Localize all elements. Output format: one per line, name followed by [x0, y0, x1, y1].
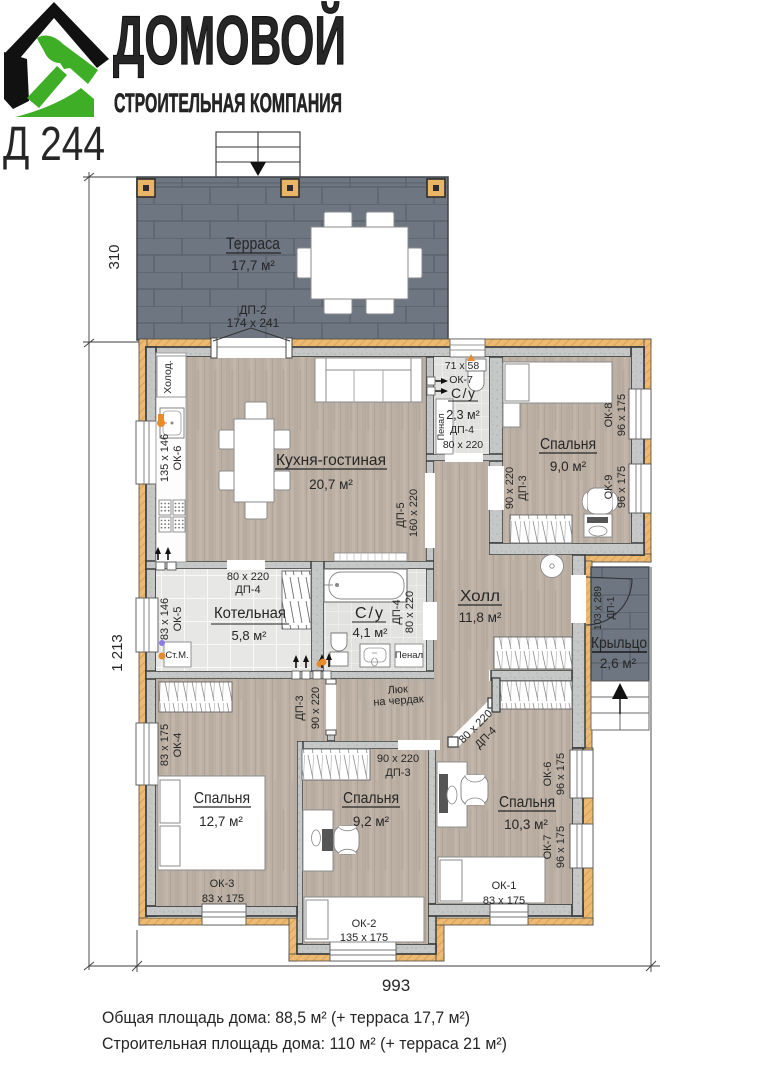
svg-text:ДП-3: ДП-3 [294, 695, 306, 720]
svg-text:83 х 175: 83 х 175 [483, 895, 525, 907]
svg-text:С/у: С/у [451, 385, 475, 401]
svg-text:10,3 м²: 10,3 м² [504, 817, 548, 832]
svg-text:12,7 м²: 12,7 м² [199, 814, 243, 829]
svg-text:90 х 220: 90 х 220 [310, 687, 322, 729]
svg-text:96 х 175: 96 х 175 [616, 466, 628, 508]
svg-text:ОК-6: ОК-6 [542, 762, 554, 787]
svg-text:Котельная: Котельная [214, 605, 286, 622]
svg-text:83 х 146: 83 х 146 [159, 598, 171, 640]
svg-text:80 х 220: 80 х 220 [443, 439, 483, 451]
svg-text:83 х 175: 83 х 175 [159, 724, 171, 766]
svg-text:ОК-5: ОК-5 [172, 607, 184, 632]
svg-text:ОК-8: ОК-8 [603, 403, 615, 428]
svg-text:11,8 м²: 11,8 м² [459, 610, 502, 625]
svg-text:ОК-7: ОК-7 [542, 835, 554, 860]
svg-text:Крыльцо: Крыльцо [591, 635, 647, 652]
svg-text:90 х 220: 90 х 220 [504, 467, 516, 509]
svg-text:96 х 175: 96 х 175 [555, 826, 567, 868]
svg-text:Общая площадь дома: 88,5 м² (+: Общая площадь дома: 88,5 м² (+ терраса 1… [102, 1008, 470, 1027]
svg-text:ДОМОВОЙ: ДОМОВОЙ [113, 1, 346, 79]
svg-text:Спальня: Спальня [540, 436, 596, 453]
svg-text:Холл: Холл [460, 588, 500, 605]
svg-text:1 213: 1 213 [109, 634, 126, 672]
svg-text:Спальня: Спальня [194, 790, 250, 807]
svg-text:Пенал: Пенал [436, 414, 446, 441]
svg-text:ОК-4: ОК-4 [172, 733, 184, 758]
svg-text:135 х 146: 135 х 146 [159, 434, 171, 482]
svg-text:ОК-1: ОК-1 [492, 880, 517, 892]
svg-text:71 х 58: 71 х 58 [445, 360, 480, 372]
svg-text:ДП-1: ДП-1 [606, 596, 617, 619]
svg-text:5,8 м²: 5,8 м² [232, 628, 268, 643]
svg-text:ОК-3: ОК-3 [210, 878, 235, 890]
svg-text:СТРОИТЕЛЬНАЯ КОМПАНИЯ: СТРОИТЕЛЬНАЯ КОМПАНИЯ [114, 88, 342, 118]
svg-text:20,7 м²: 20,7 м² [309, 477, 353, 492]
svg-text:9,2 м²: 9,2 м² [353, 814, 390, 829]
svg-text:ДП-5: ДП-5 [395, 502, 407, 527]
svg-text:ОК-6: ОК-6 [172, 446, 184, 471]
svg-text:96 х 175: 96 х 175 [616, 394, 628, 436]
svg-text:Кухня-гостиная: Кухня-гостиная [276, 452, 386, 469]
svg-text:96 х 175: 96 х 175 [555, 753, 567, 795]
svg-text:80 х 220: 80 х 220 [404, 591, 416, 633]
svg-text:83 х 175: 83 х 175 [202, 893, 244, 905]
svg-text:Холод.: Холод. [162, 360, 174, 393]
svg-text:ОК-9: ОК-9 [603, 475, 615, 500]
svg-text:Спальня: Спальня [343, 790, 399, 807]
svg-text:Строительная площадь дома: 110: Строительная площадь дома: 110 м² (+ тер… [102, 1034, 507, 1053]
svg-text:С/у: С/у [355, 605, 383, 622]
svg-text:17,7 м²: 17,7 м² [231, 258, 275, 273]
svg-text:90 х 220: 90 х 220 [377, 753, 419, 765]
svg-text:103 х 289: 103 х 289 [593, 586, 604, 630]
svg-text:Д 244: Д 244 [3, 118, 105, 171]
svg-text:80 х 220: 80 х 220 [227, 571, 269, 583]
svg-text:Терраса: Терраса [226, 234, 280, 253]
svg-text:ДП-4: ДП-4 [391, 599, 403, 624]
svg-text:174 х 241: 174 х 241 [227, 316, 280, 330]
svg-text:ДП-3: ДП-3 [517, 475, 529, 500]
svg-text:4,1 м²: 4,1 м² [353, 625, 389, 640]
svg-text:310: 310 [106, 244, 123, 269]
svg-text:ОК-2: ОК-2 [352, 918, 377, 930]
svg-text:Пенал: Пенал [395, 650, 423, 661]
svg-text:ДП-4: ДП-4 [450, 424, 474, 436]
svg-text:ДП-2: ДП-2 [239, 303, 267, 317]
svg-text:9,0 м²: 9,0 м² [550, 459, 587, 474]
svg-text:160 х 220: 160 х 220 [408, 489, 420, 537]
svg-text:2,3 м²: 2,3 м² [446, 408, 480, 422]
svg-text:ДП-4: ДП-4 [235, 584, 260, 596]
svg-text:2,6 м²: 2,6 м² [600, 656, 637, 671]
svg-text:Ст.М.: Ст.М. [165, 650, 188, 661]
svg-text:135 х 175: 135 х 175 [340, 932, 388, 944]
svg-text:ДП-3: ДП-3 [385, 767, 410, 779]
svg-text:993: 993 [382, 976, 410, 995]
svg-text:Спальня: Спальня [499, 794, 555, 811]
